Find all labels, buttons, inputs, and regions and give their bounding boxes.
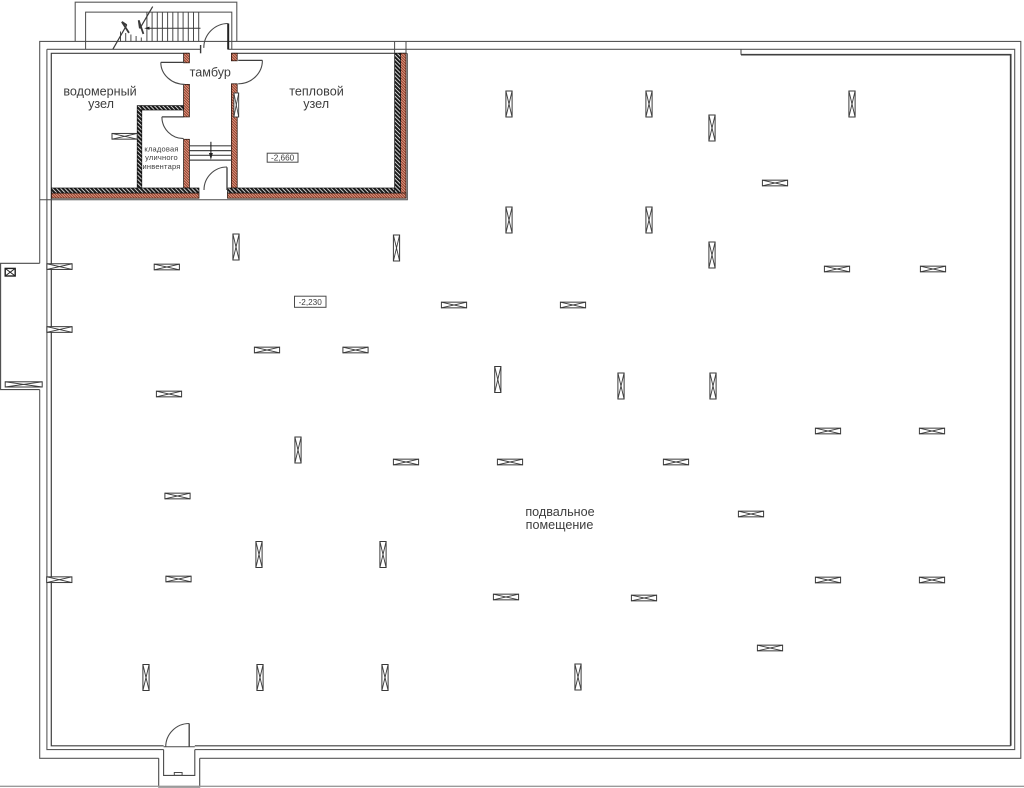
svg-text:узел: узел	[303, 97, 329, 111]
svg-text:-2,660: -2,660	[271, 154, 295, 163]
svg-text:узел: узел	[88, 97, 114, 111]
svg-text:-2,230: -2,230	[299, 298, 323, 307]
svg-text:тамбур: тамбур	[190, 66, 231, 80]
svg-text:помещение: помещение	[526, 518, 594, 532]
svg-text:подвальное: подвальное	[525, 505, 594, 519]
svg-text:уличного: уличного	[145, 153, 178, 162]
svg-text:инвентаря: инвентаря	[142, 162, 180, 171]
